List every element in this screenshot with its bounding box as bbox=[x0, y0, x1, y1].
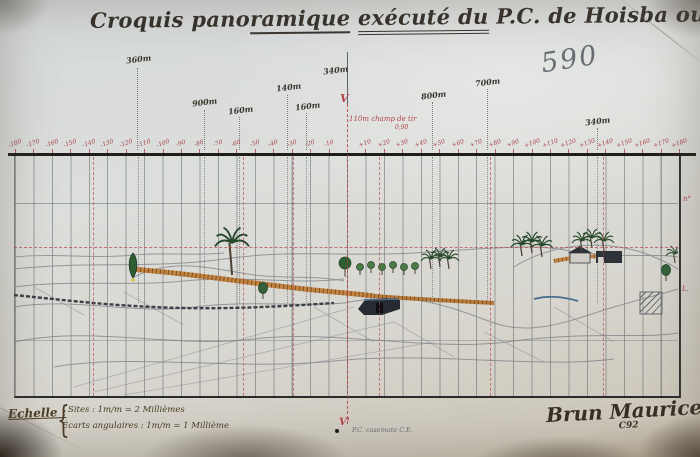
building-wall bbox=[570, 253, 590, 263]
round-tree bbox=[368, 262, 375, 269]
mil-number: +120 bbox=[560, 137, 577, 149]
red-reference-line bbox=[490, 157, 491, 396]
mil-number: -70 bbox=[209, 137, 226, 149]
mil-tick bbox=[679, 149, 680, 153]
mil-number: +40 bbox=[412, 137, 429, 149]
title-part: P.C. de Hoisba ouest bbox=[488, 1, 700, 29]
mil-tick bbox=[292, 149, 293, 153]
mil-number: +130 bbox=[578, 137, 595, 149]
mil-tick bbox=[107, 149, 108, 153]
v-direction-mark: V bbox=[340, 92, 349, 105]
mil-number: +80 bbox=[486, 137, 503, 149]
pc-casemate-note: P.C. casemate C.E. bbox=[352, 426, 413, 434]
station-dot bbox=[335, 429, 339, 433]
scale-block: Echelle : { Sites : 1m/m = 2 Millièmes É… bbox=[8, 402, 66, 421]
mil-number: +140 bbox=[597, 137, 614, 149]
horizon-red-dashed-line bbox=[14, 247, 678, 248]
mil-tick bbox=[421, 149, 422, 153]
mil-tick bbox=[144, 149, 145, 153]
mil-number: +30 bbox=[394, 137, 411, 149]
scale-line-sites: Sites : 1m/m = 2 Millièmes bbox=[68, 405, 185, 415]
mil-number: +70 bbox=[467, 137, 484, 149]
margin-red-mark: n° bbox=[683, 195, 691, 203]
mil-tick bbox=[495, 149, 496, 153]
mil-tick bbox=[513, 149, 514, 153]
mil-tick bbox=[365, 149, 366, 153]
cypress-tree bbox=[129, 253, 137, 278]
mil-tick bbox=[218, 149, 219, 153]
mil-tick bbox=[15, 149, 16, 153]
hatched-square bbox=[640, 292, 662, 314]
palm-tree bbox=[674, 254, 675, 263]
pencil-strokes bbox=[34, 287, 614, 395]
mil-tick bbox=[568, 149, 569, 153]
field-of-fire-sub: 0,90 bbox=[395, 124, 408, 131]
mil-tick bbox=[532, 149, 533, 153]
mil-number: -160 bbox=[43, 137, 60, 149]
range-label: 900m bbox=[191, 96, 217, 109]
round-tree bbox=[339, 257, 351, 269]
range-label: 700m bbox=[474, 76, 500, 89]
tree-base-dot bbox=[131, 278, 135, 282]
page-title: Croquis panoramique exécuté du P.C. de H… bbox=[90, 2, 650, 33]
scale-line-ecarts: Écarts angulaires : 1m/m = 1 Millième bbox=[62, 421, 229, 431]
mil-number: +110 bbox=[541, 137, 558, 149]
red-reference-line bbox=[243, 157, 244, 396]
title-part: exécuté du bbox=[358, 4, 489, 35]
vegetation-features bbox=[129, 228, 678, 299]
mil-number: -120 bbox=[117, 137, 134, 149]
bush bbox=[662, 265, 671, 276]
range-label: 800m bbox=[420, 89, 446, 102]
field-of-fire-note: 110m champ de tir 0,90 bbox=[349, 115, 416, 123]
mil-tick bbox=[52, 149, 53, 153]
mil-tick bbox=[661, 149, 662, 153]
mil-tick bbox=[255, 149, 256, 153]
red-reference-line bbox=[93, 157, 94, 396]
mil-number: -150 bbox=[62, 137, 79, 149]
range-label: 340m bbox=[584, 115, 610, 128]
mil-number: +170 bbox=[652, 137, 669, 149]
range-label: 340m bbox=[322, 64, 348, 77]
mil-tick bbox=[33, 149, 34, 153]
mil-tick bbox=[642, 149, 643, 153]
mil-tick bbox=[458, 149, 459, 153]
round-tree bbox=[412, 263, 419, 270]
mil-tick bbox=[402, 149, 403, 153]
mil-tick bbox=[126, 149, 127, 153]
mil-number: -100 bbox=[154, 137, 171, 149]
mil-tick bbox=[476, 149, 477, 153]
mil-number: -40 bbox=[264, 137, 281, 149]
mil-tick bbox=[605, 149, 606, 153]
title-part: Croquis pano bbox=[90, 6, 250, 33]
mil-number: -180 bbox=[6, 137, 23, 149]
range-label: 160m bbox=[294, 100, 320, 113]
mil-number: -140 bbox=[80, 137, 97, 149]
casemate-roof-line bbox=[364, 299, 398, 300]
pencil-number-note: 590 bbox=[539, 40, 601, 80]
mil-number: -170 bbox=[25, 137, 42, 149]
sight-dotted-line bbox=[137, 68, 138, 150]
paper-sheet: Croquis panoramique exécuté du P.C. de H… bbox=[0, 0, 700, 457]
mil-tick bbox=[329, 149, 330, 153]
title-part: ramique bbox=[250, 5, 351, 34]
mil-number: +10 bbox=[357, 137, 374, 149]
mil-tick bbox=[199, 149, 200, 153]
mil-tick bbox=[236, 149, 237, 153]
palm-tree bbox=[430, 259, 432, 269]
mil-scale-baseline bbox=[8, 153, 696, 156]
mil-number: -90 bbox=[172, 137, 189, 149]
red-reference-line bbox=[603, 157, 604, 396]
red-reference-line bbox=[379, 157, 380, 396]
range-label: 140m bbox=[275, 81, 301, 94]
field-of-fire-text: 110m champ de tir bbox=[349, 115, 416, 123]
mil-tick bbox=[550, 149, 551, 153]
signature-unit: C92 bbox=[619, 420, 639, 431]
mil-tick bbox=[310, 149, 311, 153]
mil-number: -20 bbox=[301, 137, 318, 149]
structures bbox=[358, 246, 662, 315]
round-tree bbox=[357, 264, 364, 271]
mil-number: -80 bbox=[191, 137, 208, 149]
mil-number: -10 bbox=[320, 137, 337, 149]
mil-tick bbox=[587, 149, 588, 153]
v-prime-mark: V' bbox=[339, 417, 350, 428]
margin-red-mark: L. bbox=[682, 285, 689, 293]
stream bbox=[534, 297, 578, 301]
mil-number: +180 bbox=[670, 137, 687, 149]
panorama-drawing bbox=[14, 157, 678, 396]
mil-number: +160 bbox=[633, 137, 650, 149]
title-part bbox=[350, 5, 358, 30]
mil-number: +100 bbox=[523, 137, 540, 149]
mil-tick bbox=[439, 149, 440, 153]
round-tree bbox=[390, 262, 397, 269]
mil-number: +90 bbox=[504, 137, 521, 149]
track-band bbox=[14, 295, 334, 308]
mil-tick bbox=[89, 149, 90, 153]
mil-number: -50 bbox=[246, 137, 263, 149]
mil-tick bbox=[273, 149, 274, 153]
palm-tree bbox=[448, 259, 450, 269]
mil-number: +150 bbox=[615, 137, 632, 149]
mil-tick bbox=[384, 149, 385, 153]
mil-number: -60 bbox=[228, 137, 245, 149]
mil-tick bbox=[624, 149, 625, 153]
mil-number: -130 bbox=[98, 137, 115, 149]
mil-tick bbox=[181, 149, 182, 153]
mil-number: +60 bbox=[449, 137, 466, 149]
aiming-axis-red-dashed-line bbox=[347, 104, 348, 424]
red-reference-line bbox=[293, 157, 294, 396]
mil-number: -30 bbox=[283, 137, 300, 149]
mil-number: +50 bbox=[431, 137, 448, 149]
palm-tree bbox=[439, 257, 441, 267]
mil-tick bbox=[70, 149, 71, 153]
bush bbox=[259, 283, 268, 294]
range-label: 360m bbox=[125, 53, 151, 66]
sight-dotted-line bbox=[487, 89, 488, 150]
mil-tick bbox=[163, 149, 164, 153]
mil-number: +20 bbox=[375, 137, 392, 149]
round-tree bbox=[401, 264, 408, 271]
range-label: 160m bbox=[227, 104, 253, 117]
